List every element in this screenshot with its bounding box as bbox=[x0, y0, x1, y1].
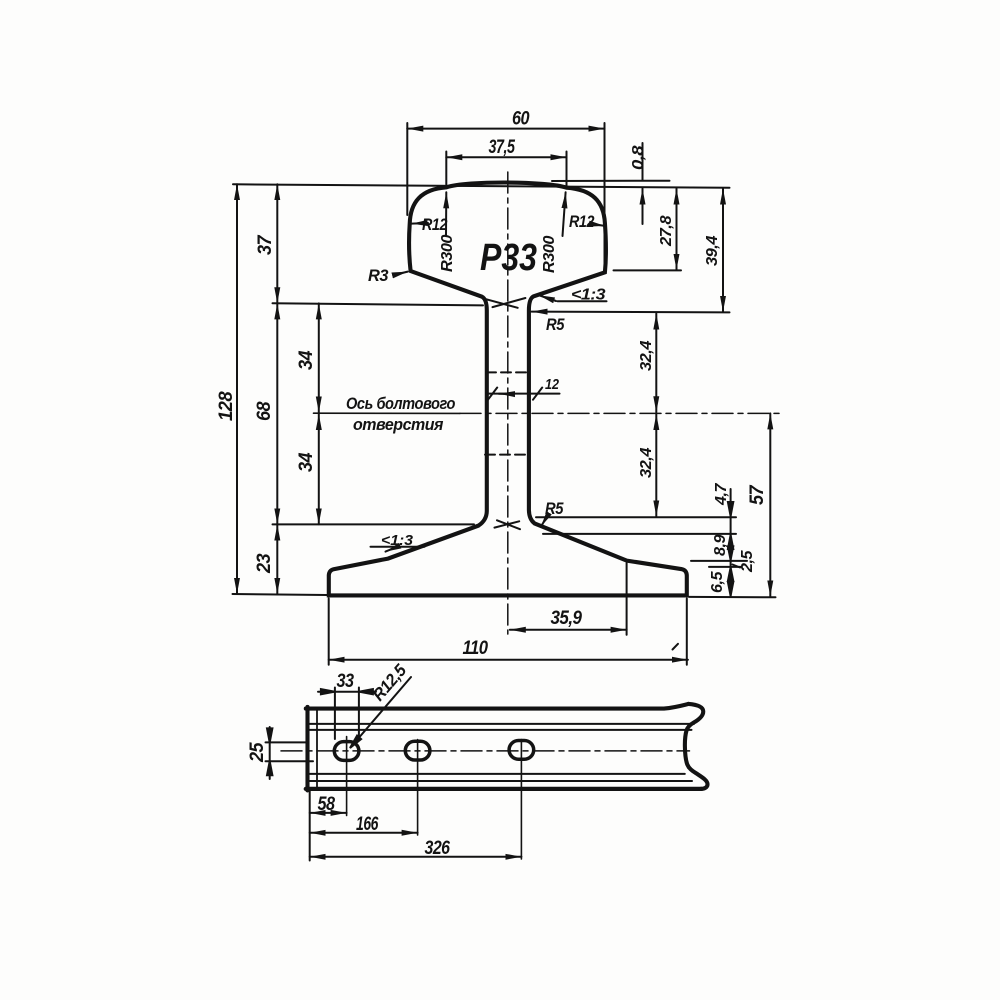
svg-text:128: 128 bbox=[216, 391, 237, 421]
svg-text:326: 326 bbox=[425, 838, 451, 859]
svg-text:6,5: 6,5 bbox=[709, 570, 726, 593]
svg-text:8,9: 8,9 bbox=[712, 534, 729, 556]
svg-text:0,8: 0,8 bbox=[630, 145, 647, 170]
svg-text:25: 25 bbox=[247, 742, 268, 763]
svg-text:68: 68 bbox=[254, 401, 275, 421]
svg-text:R5: R5 bbox=[545, 499, 564, 518]
svg-text:32,4: 32,4 bbox=[638, 340, 655, 371]
svg-text:R12: R12 bbox=[569, 212, 595, 231]
svg-text:12: 12 bbox=[545, 376, 560, 393]
svg-text:58: 58 bbox=[318, 794, 336, 815]
svg-text:R5: R5 bbox=[546, 315, 565, 334]
svg-text:34: 34 bbox=[296, 452, 317, 472]
svg-text:57: 57 bbox=[747, 484, 768, 505]
svg-text:110: 110 bbox=[463, 638, 489, 659]
svg-text:27,8: 27,8 bbox=[658, 215, 675, 247]
svg-text:<1:3: <1:3 bbox=[381, 532, 414, 549]
svg-text:2,5: 2,5 bbox=[739, 549, 756, 573]
svg-text:33: 33 bbox=[337, 671, 355, 692]
svg-text:<1:3: <1:3 bbox=[571, 287, 606, 304]
svg-text:23: 23 bbox=[254, 553, 275, 574]
svg-text:R300: R300 bbox=[541, 235, 558, 273]
svg-text:Р33: Р33 bbox=[480, 237, 537, 279]
svg-text:R300: R300 bbox=[439, 234, 456, 272]
svg-text:37: 37 bbox=[255, 234, 276, 255]
svg-text:R12,5: R12,5 bbox=[369, 660, 411, 704]
svg-text:60: 60 bbox=[512, 109, 530, 130]
svg-text:4,7: 4,7 bbox=[713, 482, 730, 506]
svg-text:37,5: 37,5 bbox=[489, 137, 516, 158]
svg-text:Ось болтового: Ось болтового bbox=[346, 394, 455, 413]
svg-text:166: 166 bbox=[356, 814, 379, 835]
svg-text:отверстия: отверстия bbox=[353, 415, 443, 434]
svg-text:R3: R3 bbox=[368, 266, 389, 285]
svg-text:R12: R12 bbox=[422, 215, 448, 234]
svg-text:34: 34 bbox=[296, 350, 317, 370]
svg-text:35,9: 35,9 bbox=[551, 608, 583, 629]
svg-text:39,4: 39,4 bbox=[704, 235, 721, 266]
svg-text:32,4: 32,4 bbox=[638, 447, 655, 478]
